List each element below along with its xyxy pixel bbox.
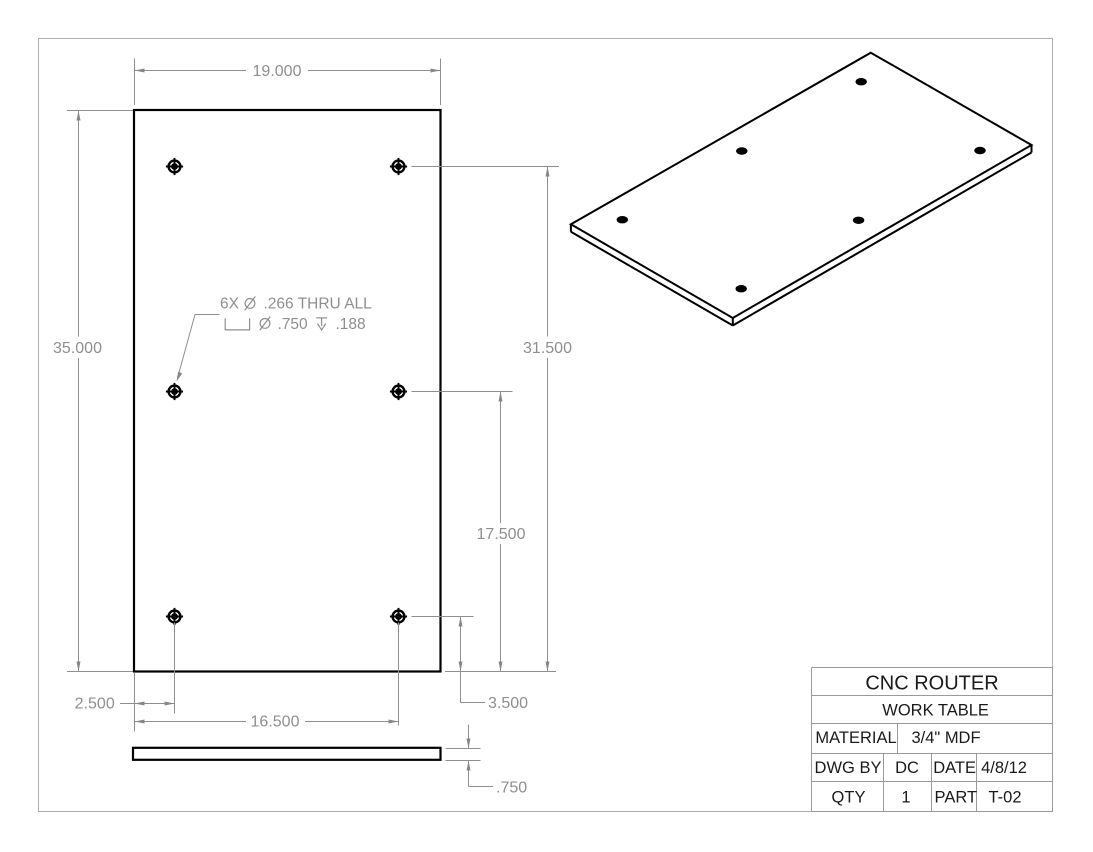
svg-text:2.500: 2.500 (75, 696, 115, 713)
svg-text:17.500: 17.500 (477, 526, 526, 543)
svg-text:31.500: 31.500 (523, 340, 572, 357)
svg-text:QTY: QTY (832, 789, 866, 807)
svg-text:T-02: T-02 (988, 789, 1021, 807)
svg-text:19.000: 19.000 (253, 63, 302, 80)
svg-text:PART: PART (935, 789, 977, 807)
svg-text:3/4" MDF: 3/4" MDF (911, 729, 980, 747)
svg-text:DC: DC (895, 759, 919, 777)
svg-text:.266 THRU ALL: .266 THRU ALL (264, 296, 373, 313)
svg-text:.750: .750 (496, 780, 527, 797)
svg-text:CNC ROUTER: CNC ROUTER (865, 673, 998, 695)
svg-text:35.000: 35.000 (53, 340, 102, 357)
svg-text:16.500: 16.500 (251, 714, 300, 731)
svg-text:3.500: 3.500 (488, 695, 528, 712)
svg-text:1: 1 (901, 789, 910, 807)
svg-text:DATE: DATE (933, 759, 976, 777)
svg-text:6X: 6X (220, 296, 240, 313)
svg-text:MATERIAL: MATERIAL (815, 729, 896, 747)
svg-text:WORK TABLE: WORK TABLE (882, 702, 989, 720)
svg-text:4/8/12: 4/8/12 (981, 759, 1027, 777)
svg-text:.188: .188 (336, 316, 366, 333)
svg-text:DWG BY: DWG BY (815, 759, 882, 777)
svg-text:.750: .750 (278, 316, 309, 333)
